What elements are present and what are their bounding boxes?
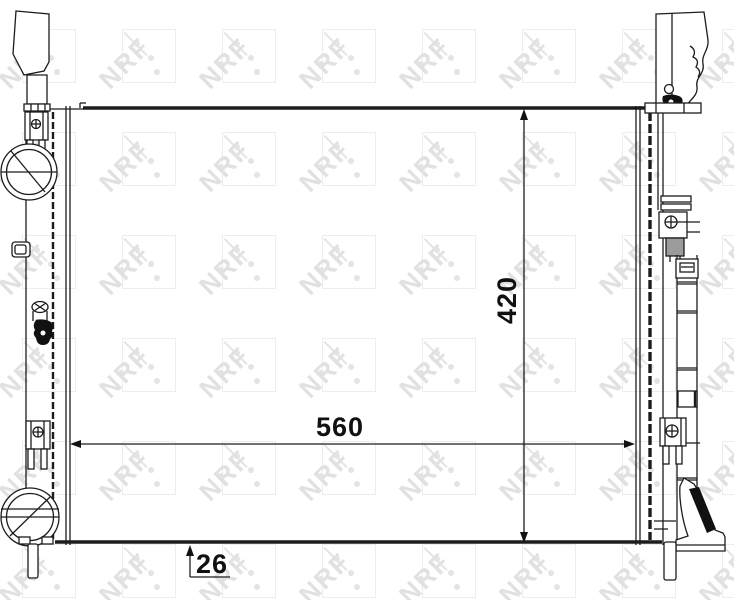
arrow-right-icon: [624, 440, 635, 448]
dimension-width-label: 560: [316, 412, 364, 442]
arrow-left-icon: [70, 440, 81, 448]
retaining-clip: [12, 242, 30, 257]
arrow-up-icon: [520, 109, 528, 120]
lower-bracket-left: [26, 421, 50, 469]
right-foot-bracket: [654, 478, 725, 551]
rubber-mount: [666, 238, 684, 256]
right-top-bracket: [656, 12, 708, 111]
arrow-up-icon: [186, 545, 194, 556]
dimension-height: 420: [492, 109, 528, 543]
radiator-technical-drawing: 420 560 26: [0, 0, 734, 600]
dimension-depth-label: 26: [196, 549, 228, 579]
dimension-width: 560: [70, 412, 635, 448]
dimension-height-label: 420: [492, 276, 522, 324]
radiator-drawing-page: NRFNRFNRFNRFNRFNRFNRFNRFNRFNRFNRFNRFNRFN…: [0, 0, 734, 600]
dimension-depth: 26: [186, 545, 230, 579]
radiator-core: [26, 103, 663, 545]
bolt-icon: [665, 85, 674, 94]
left-top-pipe: [13, 11, 50, 111]
right-upper-bracket: [659, 196, 700, 262]
drain-plug: [32, 302, 53, 346]
upper-hose-connector: [1, 144, 57, 200]
right-tank-top-cap: [645, 103, 701, 113]
right-lower-bracket: [660, 418, 700, 464]
left-mounting-pin: [28, 544, 38, 578]
right-mounting-pin: [664, 542, 676, 580]
lower-hose-connector: [1, 488, 59, 546]
